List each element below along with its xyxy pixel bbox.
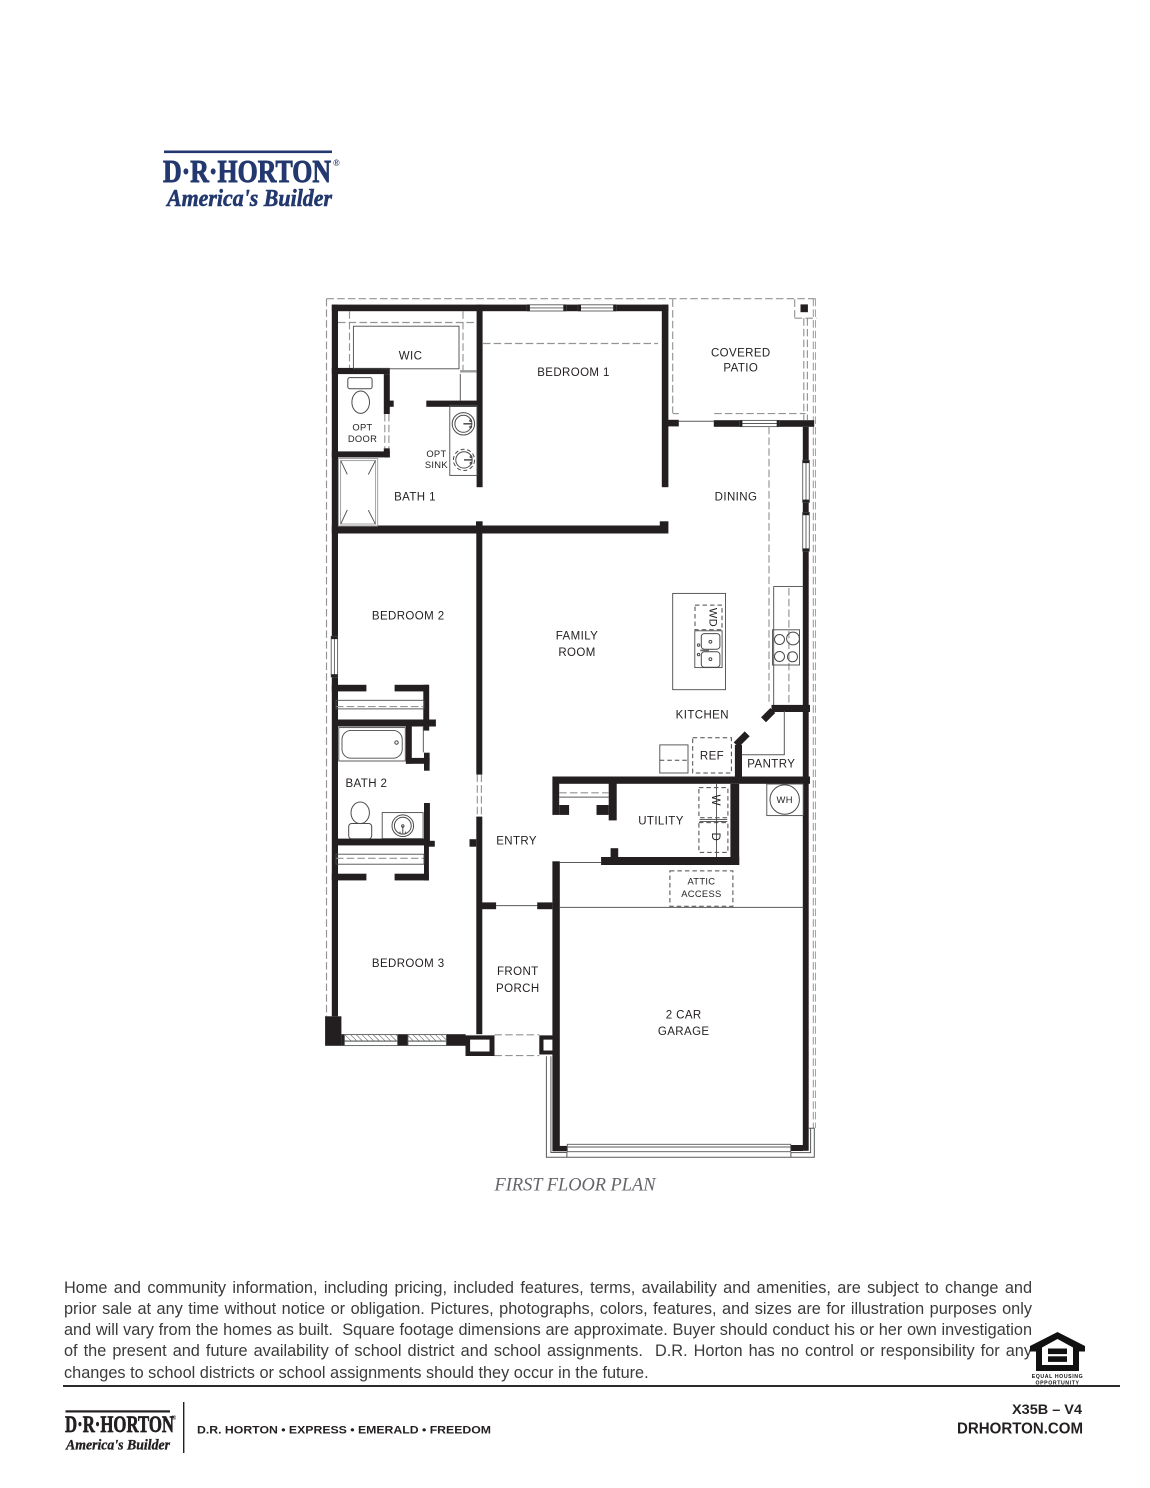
svg-text:D.R. HORTON • EXPRESS • EMERAL: D.R. HORTON • EXPRESS • EMERALD • FREEDO… <box>197 1425 491 1437</box>
svg-text:DRHORTON.COM: DRHORTON.COM <box>957 1421 1083 1438</box>
svg-text:America's Builder: America's Builder <box>65 1437 171 1454</box>
svg-text:X35B – V4: X35B – V4 <box>1012 1402 1083 1417</box>
svg-text:®: ® <box>171 1414 177 1422</box>
svg-text:D·R·HORTON: D·R·HORTON <box>65 1412 174 1437</box>
